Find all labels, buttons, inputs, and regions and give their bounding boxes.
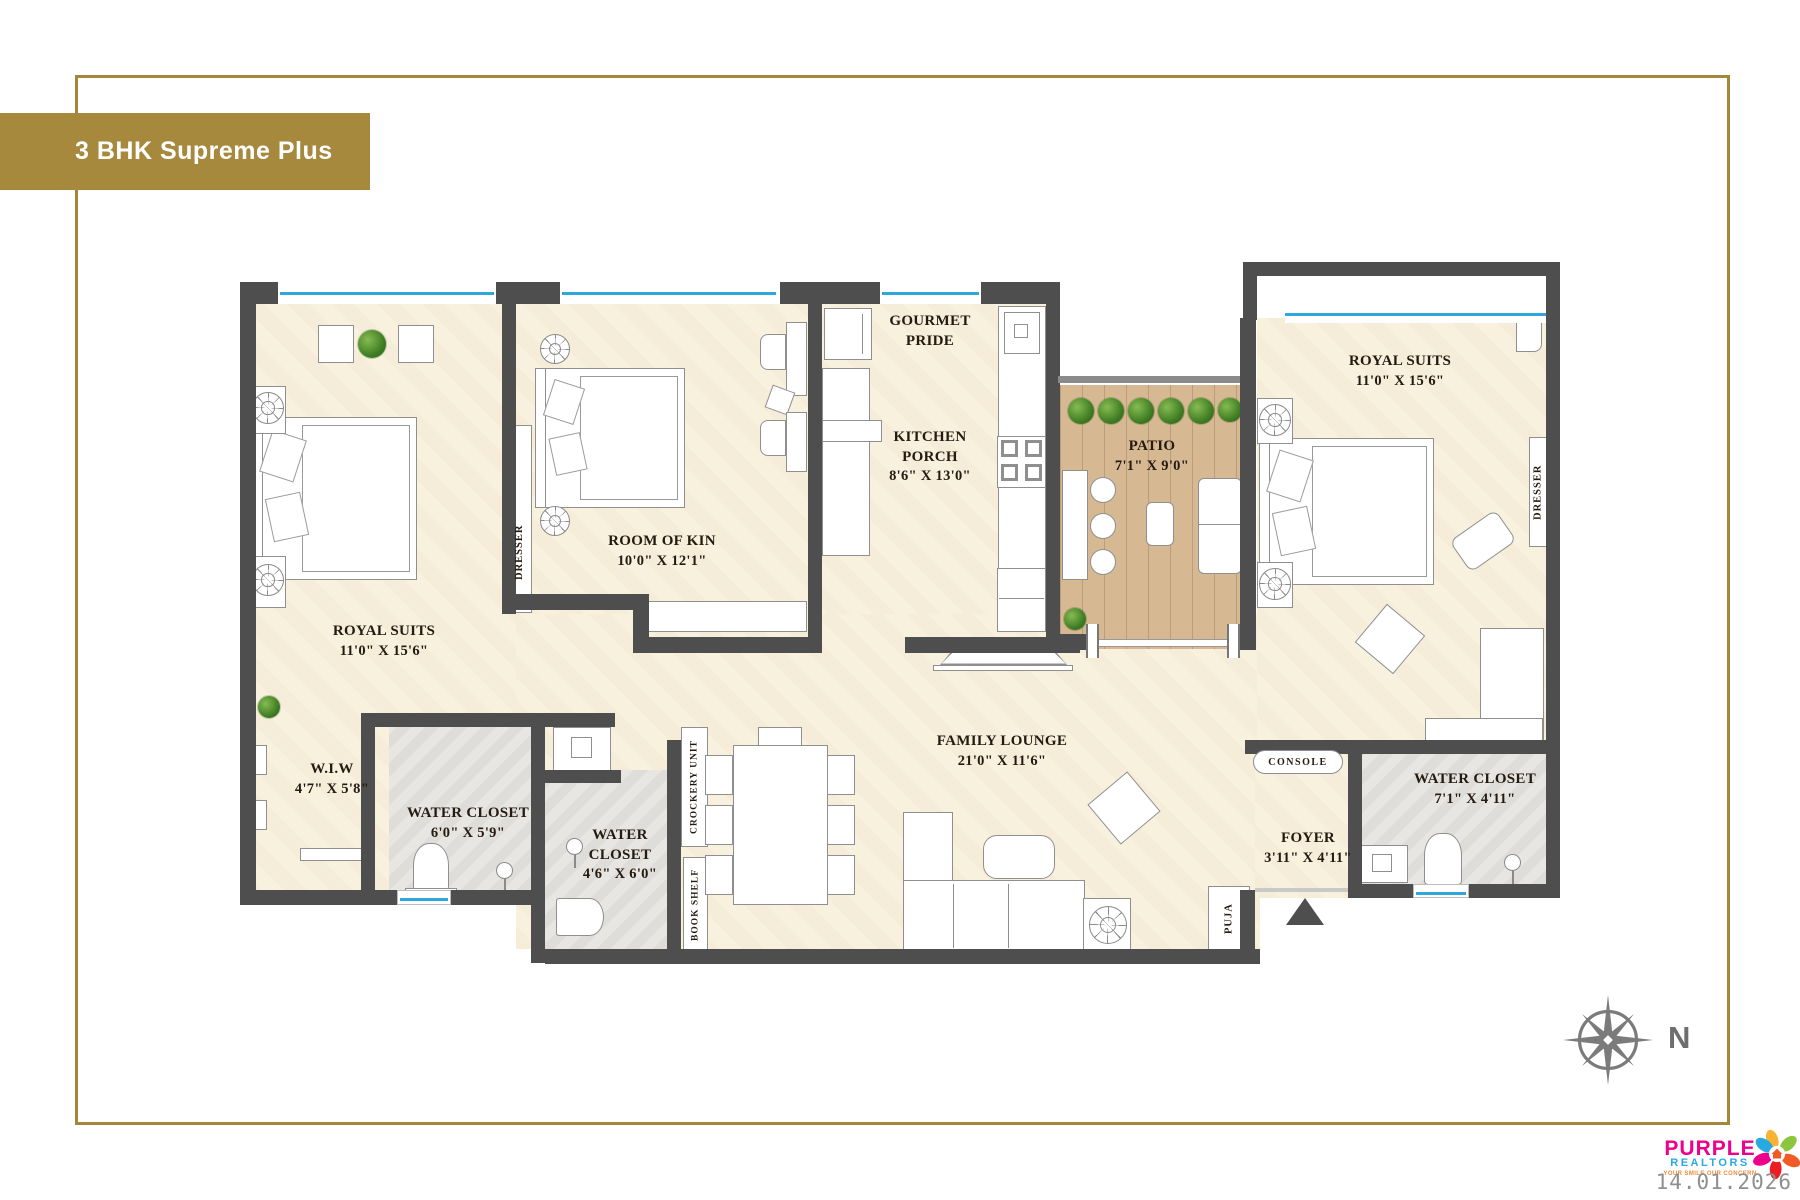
crockery-unit-label: CROCKERY UNIT [682, 729, 707, 845]
date-stamp: 14.01.2026 [1656, 1170, 1792, 1194]
desk-chair [760, 420, 786, 456]
room-label-gourmet-pride: GOURMET PRIDE [880, 312, 980, 351]
room-label-patio: PATIO7'1" X 9'0" [1072, 437, 1232, 475]
toilet [556, 898, 604, 936]
dining-chair [827, 855, 855, 895]
patio-table [1146, 502, 1174, 546]
plant-icon [1064, 608, 1086, 630]
kitchen-cabinet [997, 568, 1046, 632]
bed [535, 368, 685, 508]
room-label-foyer: FOYER3'11" X 4'11" [1238, 829, 1378, 867]
fan-icon [252, 564, 284, 596]
dining-chair [827, 755, 855, 795]
sofa [903, 880, 1085, 952]
dining-chair [705, 805, 733, 845]
shower-door [1413, 884, 1469, 898]
fan-icon [540, 334, 570, 364]
shower-door [397, 890, 451, 905]
bar-stool [1090, 477, 1116, 503]
window [880, 284, 981, 302]
toilet [1424, 833, 1462, 885]
compass-icon [1562, 994, 1654, 1086]
window [1285, 313, 1546, 323]
window [278, 284, 496, 302]
faucet-icon [496, 862, 513, 879]
window [560, 284, 778, 302]
desk [786, 322, 807, 396]
fan-icon [1089, 906, 1127, 944]
sink [553, 727, 611, 771]
desk [786, 412, 807, 472]
room-label-royal-suits-right: ROYAL SUITS11'0" X 15'6" [1300, 352, 1500, 390]
console-label: CONSOLE [1253, 750, 1343, 774]
room-label-water-closet-3: WATER CLOSET7'1" X 4'11" [1390, 770, 1560, 808]
plant-icon [258, 696, 280, 718]
toilet [413, 843, 449, 891]
chair [398, 325, 434, 363]
book-shelf-label: BOOK SHELF [684, 859, 707, 951]
plant-icon [1068, 398, 1094, 424]
patio-bench [1198, 478, 1242, 574]
dining-chair [827, 805, 855, 845]
fan-icon [1259, 568, 1291, 600]
fan-icon [252, 392, 284, 424]
dining-chair [758, 727, 802, 747]
desk-chair [760, 334, 786, 370]
dresser-label: DRESSER [508, 495, 531, 610]
room-label-kitchen-porch: KITCHEN PORCH8'6" X 13'0" [878, 428, 982, 486]
plant-icon [1158, 398, 1184, 424]
room-label-wiw: W.I.W4'7" X 5'8" [262, 760, 402, 798]
room-label-water-closet-2: WATER CLOSET4'6" X 6'0" [575, 826, 665, 884]
room-label-family-lounge: FAMILY LOUNGE21'0" X 11'6" [902, 732, 1102, 770]
room-label-room-of-kin: ROOM OF KIN10'0" X 12'1" [562, 532, 762, 570]
plant-icon [1218, 398, 1242, 422]
faucet-icon [1504, 854, 1521, 871]
page-title: 3 BHK Supreme Plus [75, 137, 333, 166]
sliding-door [1094, 639, 1230, 647]
plant-icon [1128, 398, 1154, 424]
entry-arrow-icon [1286, 898, 1324, 925]
plant-icon [1188, 398, 1214, 424]
fan-icon [1259, 404, 1291, 436]
brand-name: PURPLE [1662, 1138, 1758, 1159]
bar-stool [1090, 513, 1116, 539]
coffee-table [983, 835, 1055, 879]
floor-plan-page: 3 BHK Supreme Plus [0, 0, 1800, 1200]
room-label-royal-suits-left: ROYAL SUITS11'0" X 15'6" [284, 622, 484, 660]
title-banner: 3 BHK Supreme Plus [0, 113, 370, 190]
room-label-water-closet-1: WATER CLOSET6'0" X 5'9" [378, 804, 558, 842]
dresser-label: DRESSER [1529, 440, 1547, 545]
puja-label: PUJA [1210, 888, 1248, 950]
threshold [1255, 888, 1348, 892]
plant-icon [358, 330, 386, 358]
chair [318, 325, 354, 363]
kitchen-counter [822, 368, 870, 556]
dining-chair [705, 855, 733, 895]
dining-chair [705, 755, 733, 795]
patio-bar [1062, 470, 1088, 580]
sideboard [645, 601, 807, 632]
north-label: N [1668, 1020, 1690, 1056]
bar-stool [1090, 549, 1116, 575]
brand-subname: REALTORS [1662, 1158, 1758, 1169]
plant-icon [1098, 398, 1124, 424]
dining-table [733, 745, 828, 905]
